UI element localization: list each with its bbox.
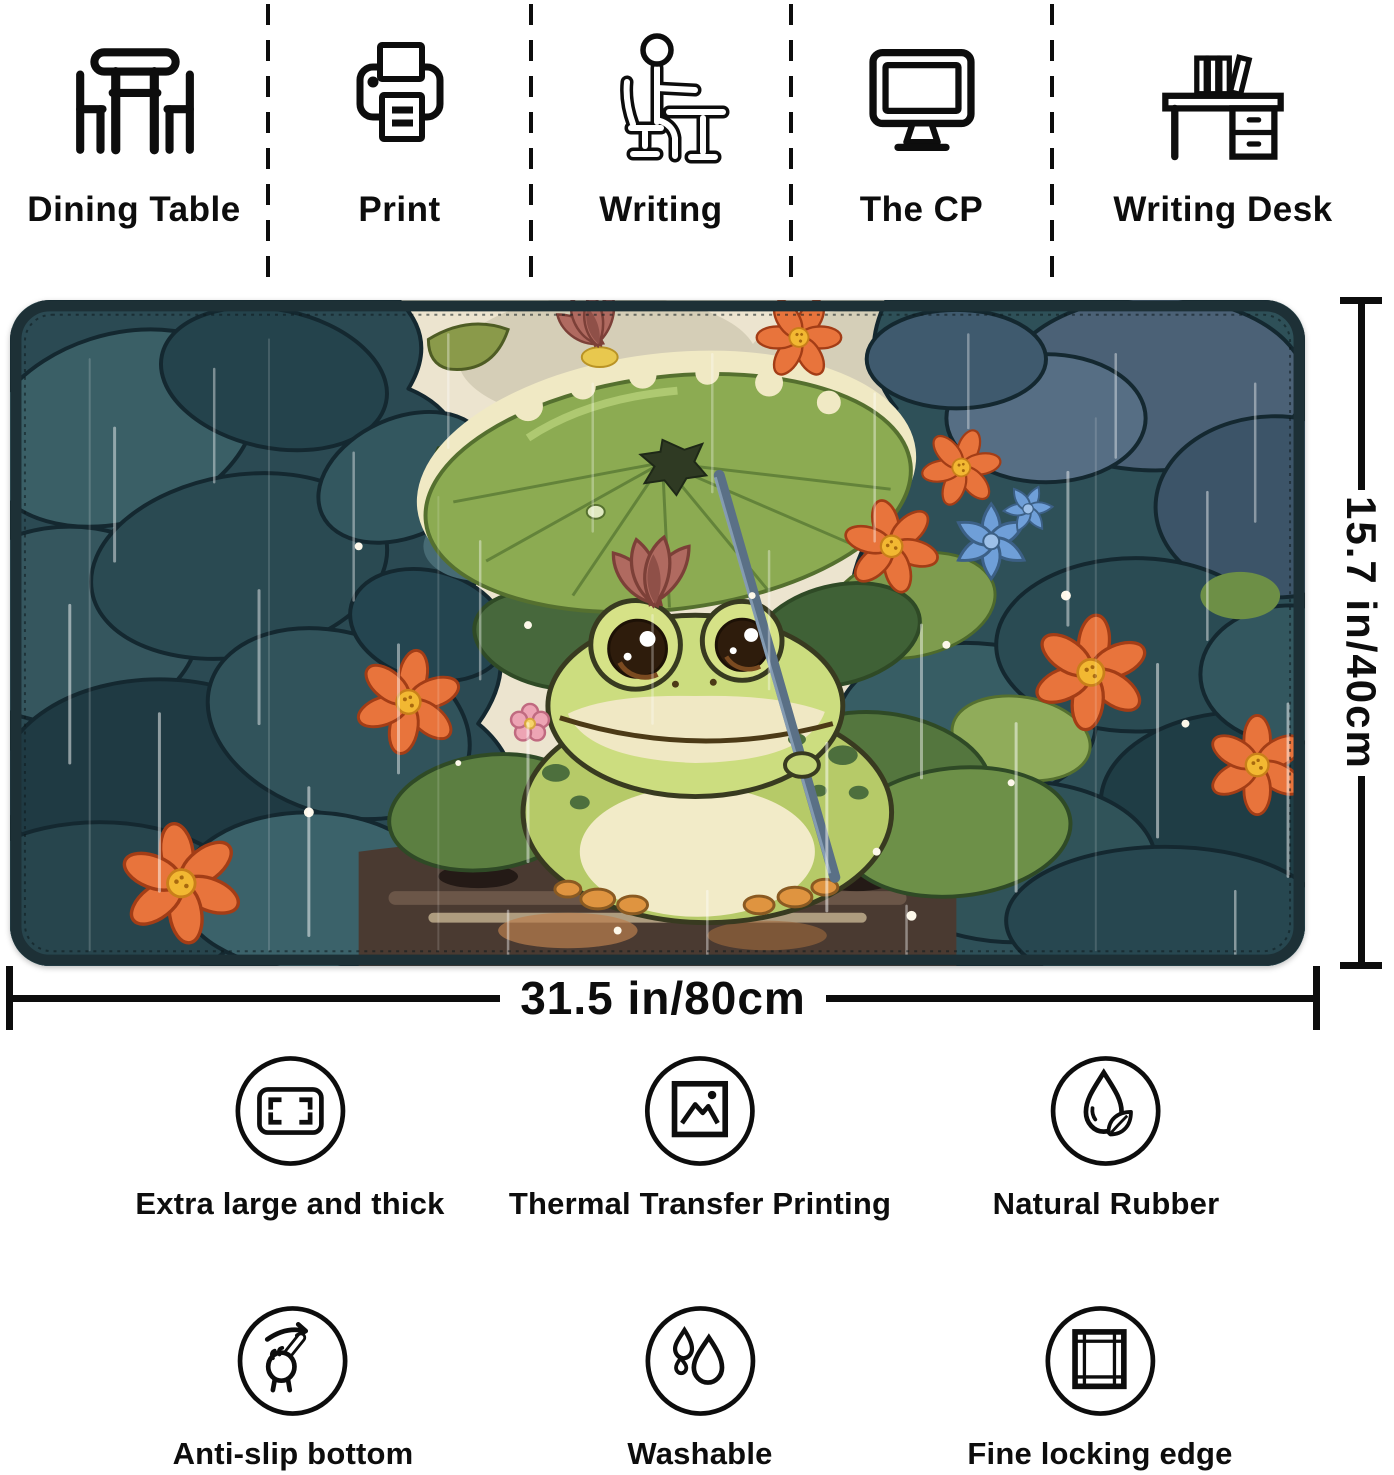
dimension-line xyxy=(13,995,500,1002)
swipe-finger-icon xyxy=(232,1300,354,1422)
dimension-end-bar xyxy=(1340,297,1382,304)
picture-icon xyxy=(639,1050,761,1172)
dimension-end-bar xyxy=(1313,966,1320,1030)
scene-dining-table: Dining Table xyxy=(0,0,268,288)
scene-label: Writing Desk xyxy=(1113,190,1332,230)
feature-label: Thermal Transfer Printing xyxy=(509,1186,891,1222)
width-dimension-annotation: 31.5 in/80cm xyxy=(6,962,1320,1034)
stitched-frame-icon xyxy=(1039,1300,1161,1422)
dining-table-icon xyxy=(68,24,200,176)
dimension-line xyxy=(826,995,1313,1002)
dashed-divider xyxy=(529,4,533,282)
width-dimension-label: 31.5 in/80cm xyxy=(500,971,826,1025)
scene-label: Writing xyxy=(599,190,722,230)
scene-print: Print xyxy=(268,0,531,288)
feature-natural-rubber: Natural Rubber xyxy=(993,1050,1220,1222)
feature-anti-slip: Anti-slip bottom xyxy=(173,1300,414,1472)
scene-computer: The CP xyxy=(791,0,1052,288)
dimension-line xyxy=(1358,776,1365,962)
dimension-line xyxy=(1358,304,1365,490)
usage-scenes-row: Dining Table Print xyxy=(0,0,1394,288)
scene-writing-desk: Writing Desk xyxy=(1052,0,1394,288)
dashed-divider xyxy=(1050,4,1054,282)
feature-label: Extra large and thick xyxy=(135,1186,444,1222)
droplet-leaf-icon xyxy=(1045,1050,1167,1172)
feature-label: Washable xyxy=(627,1436,772,1472)
scene-label: Dining Table xyxy=(27,190,240,230)
feature-label: Natural Rubber xyxy=(993,1186,1220,1222)
dashed-divider xyxy=(789,4,793,282)
height-dimension-label: 15.7 in/40cm xyxy=(1337,496,1385,770)
dimension-end-bar xyxy=(1340,962,1382,969)
product-infographic: Dining Table Print xyxy=(0,0,1394,1475)
frog-rain-illustration xyxy=(10,300,1305,966)
desk-mat-artwork xyxy=(10,300,1305,966)
computer-monitor-icon xyxy=(853,24,991,176)
writing-person-icon xyxy=(591,24,731,176)
dimension-end-bar xyxy=(6,966,13,1030)
height-dimension-annotation: 15.7 in/40cm xyxy=(1328,297,1394,969)
scene-label: Print xyxy=(358,190,440,230)
printer-icon xyxy=(340,24,460,176)
feature-thermal-printing: Thermal Transfer Printing xyxy=(509,1050,891,1222)
feature-label: Anti-slip bottom xyxy=(173,1436,414,1472)
size-frame-icon xyxy=(229,1050,351,1172)
scene-label: The CP xyxy=(860,190,984,230)
feature-extra-large: Extra large and thick xyxy=(135,1050,444,1222)
feature-label: Fine locking edge xyxy=(967,1436,1232,1472)
scene-writing: Writing xyxy=(531,0,791,288)
water-drops-icon xyxy=(639,1300,761,1422)
writing-desk-icon xyxy=(1152,24,1294,176)
dashed-divider xyxy=(266,4,270,282)
feature-washable: Washable xyxy=(627,1300,772,1472)
feature-locking-edge: Fine locking edge xyxy=(967,1300,1232,1472)
